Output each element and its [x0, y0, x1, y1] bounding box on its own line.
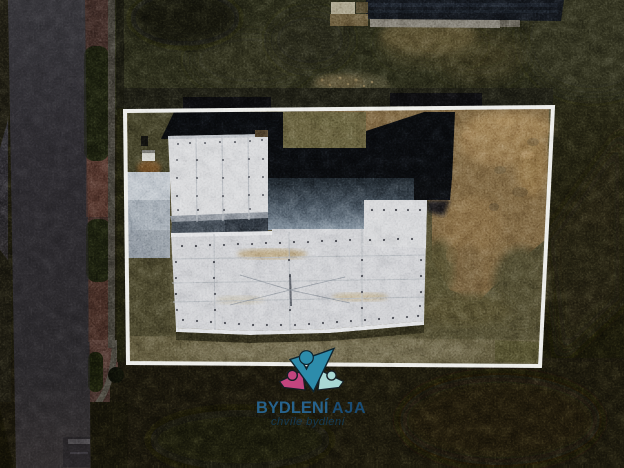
svg-text:AJA: AJA: [332, 400, 366, 417]
svg-text:chvíle bydlení: chvíle bydlení: [271, 416, 346, 428]
svg-text:BYDLENÍ: BYDLENÍ: [256, 398, 329, 417]
